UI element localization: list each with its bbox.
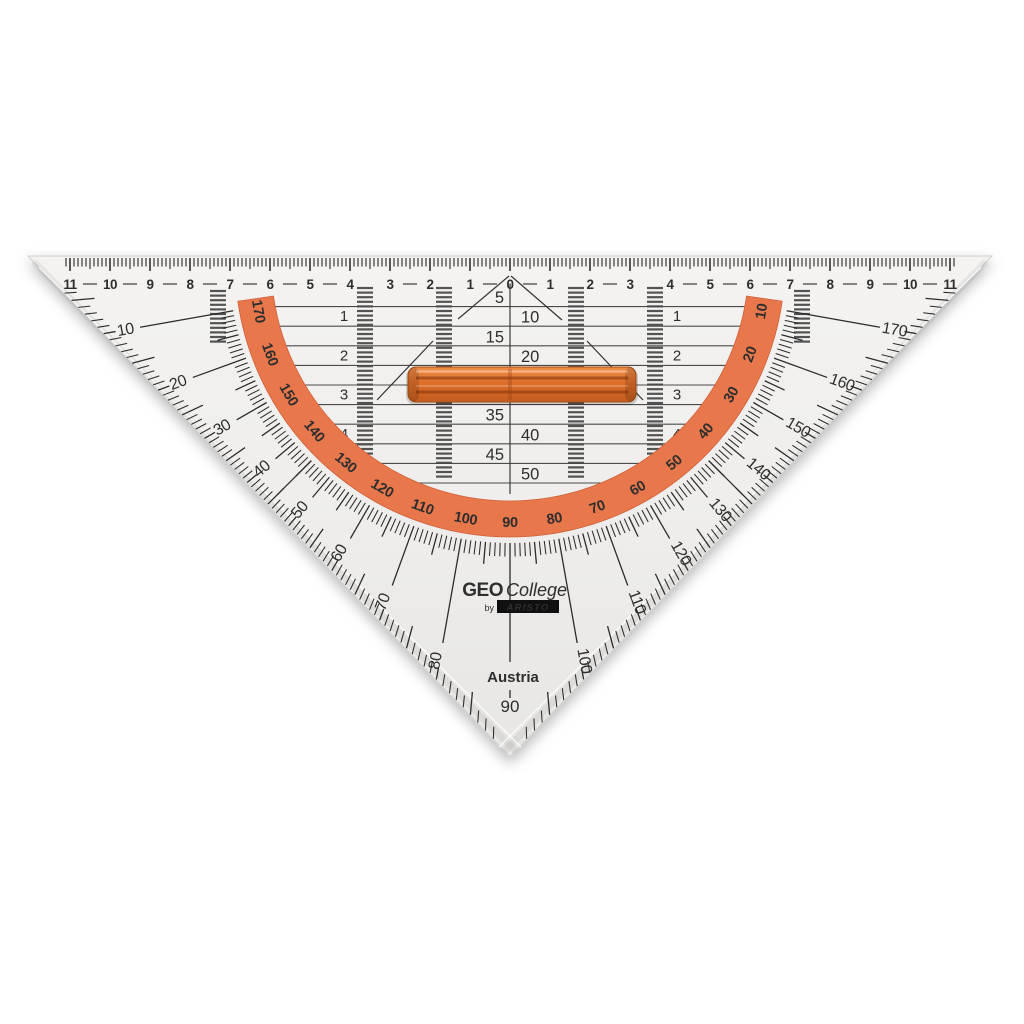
cm-number: 8: [186, 277, 194, 292]
cm-number: 3: [386, 277, 394, 292]
cm-number: 10: [103, 277, 117, 292]
grid-label: 35: [486, 407, 504, 425]
cm-number: 3: [626, 277, 634, 292]
by-text: by: [484, 603, 494, 613]
cm-number: 2: [586, 277, 593, 292]
cm-number: 10: [903, 277, 917, 292]
cm-number: 11: [943, 277, 957, 292]
cm-number: 6: [746, 277, 754, 292]
grid-label: 15: [486, 328, 504, 346]
row-label-right: 1: [673, 308, 681, 325]
cm-number: 7: [226, 277, 233, 292]
grid-label: 50: [521, 466, 539, 484]
geo-text: GEO: [462, 580, 503, 601]
grid-label: 10: [521, 309, 539, 327]
grip-handle: [406, 367, 638, 405]
cm-number: 8: [826, 277, 834, 292]
cm-number: 4: [666, 277, 674, 292]
cm-number: 1: [466, 277, 474, 292]
degree-number-inner: 90: [502, 515, 518, 531]
cm-number: 9: [146, 277, 153, 292]
college-text: College: [506, 580, 567, 600]
degree-number-inner: 80: [545, 510, 563, 528]
degree-number-outer: 90: [501, 697, 520, 716]
geodreieck-set-square: 1110987654321012345678910115101520253035…: [0, 0, 1024, 1024]
row-label-right: 3: [673, 387, 681, 404]
grid-label: 20: [521, 348, 539, 366]
row-label-right: 2: [673, 347, 681, 364]
cm-number: 9: [866, 277, 873, 292]
cm-number: 5: [706, 277, 714, 292]
country-text: Austria: [487, 669, 539, 686]
cm-number: 2: [426, 277, 433, 292]
grid-label: 45: [486, 446, 504, 464]
cm-number: 1: [546, 277, 554, 292]
degree-number-inner: 10: [753, 302, 771, 320]
grid-label: 40: [521, 426, 539, 444]
cm-number: 11: [63, 277, 77, 292]
product-photo-stage: 1110987654321012345678910115101520253035…: [0, 0, 1024, 1024]
row-label-left: 2: [340, 347, 348, 364]
row-label-left: 1: [340, 308, 348, 325]
cm-number: 5: [306, 277, 314, 292]
row-label-left: 3: [340, 387, 348, 404]
cm-number: 7: [786, 277, 793, 292]
cm-number: 4: [346, 277, 354, 292]
cm-number: 6: [266, 277, 274, 292]
aristo-text: ARISTO: [506, 603, 550, 614]
grid-label: 5: [495, 289, 504, 307]
